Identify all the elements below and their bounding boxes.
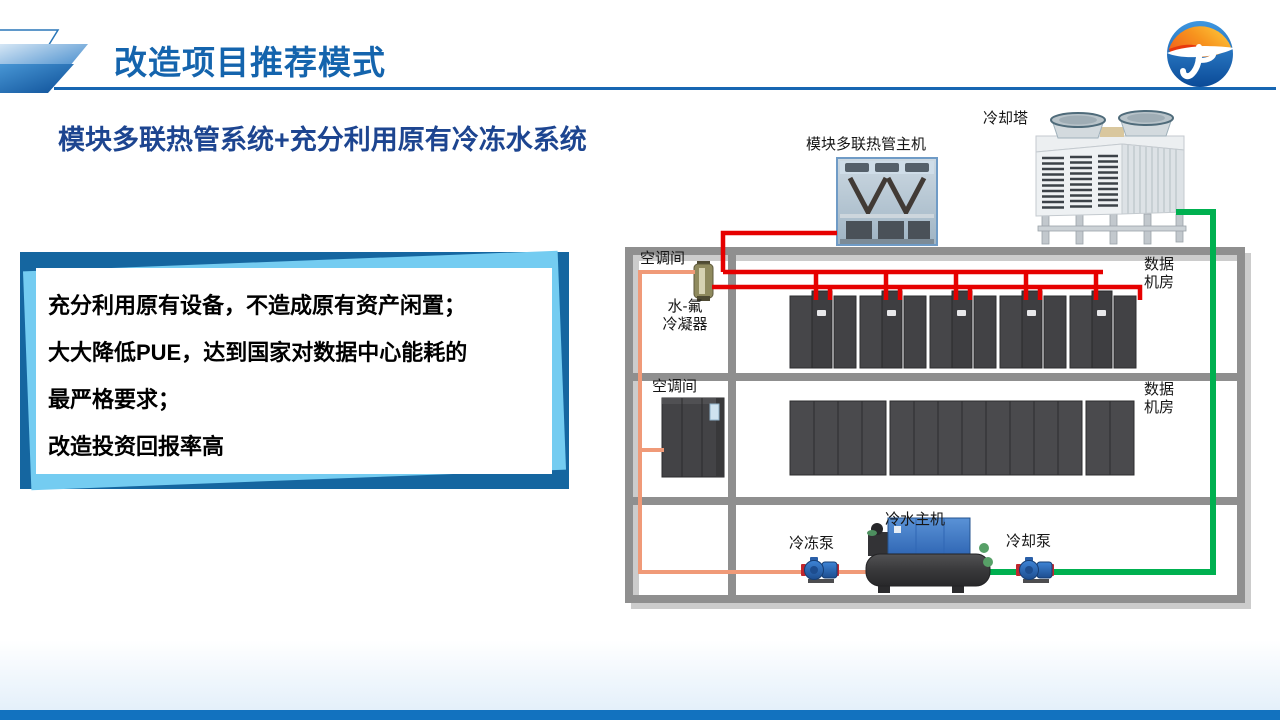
cooling-tower [1036,111,1186,244]
chilled-pump-label: 冷冻泵 [789,535,834,553]
heat-pipe-unit-photo [837,158,937,245]
footer-bar [0,710,1280,720]
rack-group [1070,291,1136,368]
heat-pipe-unit-label: 模块多联热管主机 [806,136,926,154]
cooling-pump-label: 冷却泵 [1006,533,1051,551]
rack-group [790,291,856,368]
water-chiller [866,518,993,593]
data-room2-label: 数据 机房 [1144,381,1174,417]
rack-group [1000,291,1066,368]
chilled-water-pump [801,557,839,583]
ac-room2-label: 空调间 [652,378,697,396]
water-fluorine-condenser [694,261,713,301]
tower-legs [1038,214,1186,244]
fan-inner [1059,116,1097,125]
chiller-label: 冷水主机 [885,511,945,529]
slide: 改造项目推荐模式 模块多联热管系统+充分利用原有冷冻水系统 充分利用原有设备，不… [0,0,1280,720]
tower-side-face [1122,144,1184,214]
cooling-tower-label: 冷却塔 [983,110,1028,128]
cooling-water-pump [1016,557,1054,583]
rack-group [860,291,926,368]
data-room1-label: 数据 机房 [1144,256,1174,292]
condenser-label: 水-氟 冷凝器 [652,298,718,334]
crac-cabinet [662,398,724,477]
tower-deck-detail [1100,127,1124,137]
data-room1-racks [790,291,1136,368]
ac-room1-label: 空调间 [640,250,685,268]
rack-group [930,291,996,368]
system-diagram [0,0,1280,720]
fan-inner [1127,114,1165,123]
data-room2-racks [790,401,1134,475]
footer-gradient [0,640,1280,710]
cooling-water-pipe [988,212,1213,572]
